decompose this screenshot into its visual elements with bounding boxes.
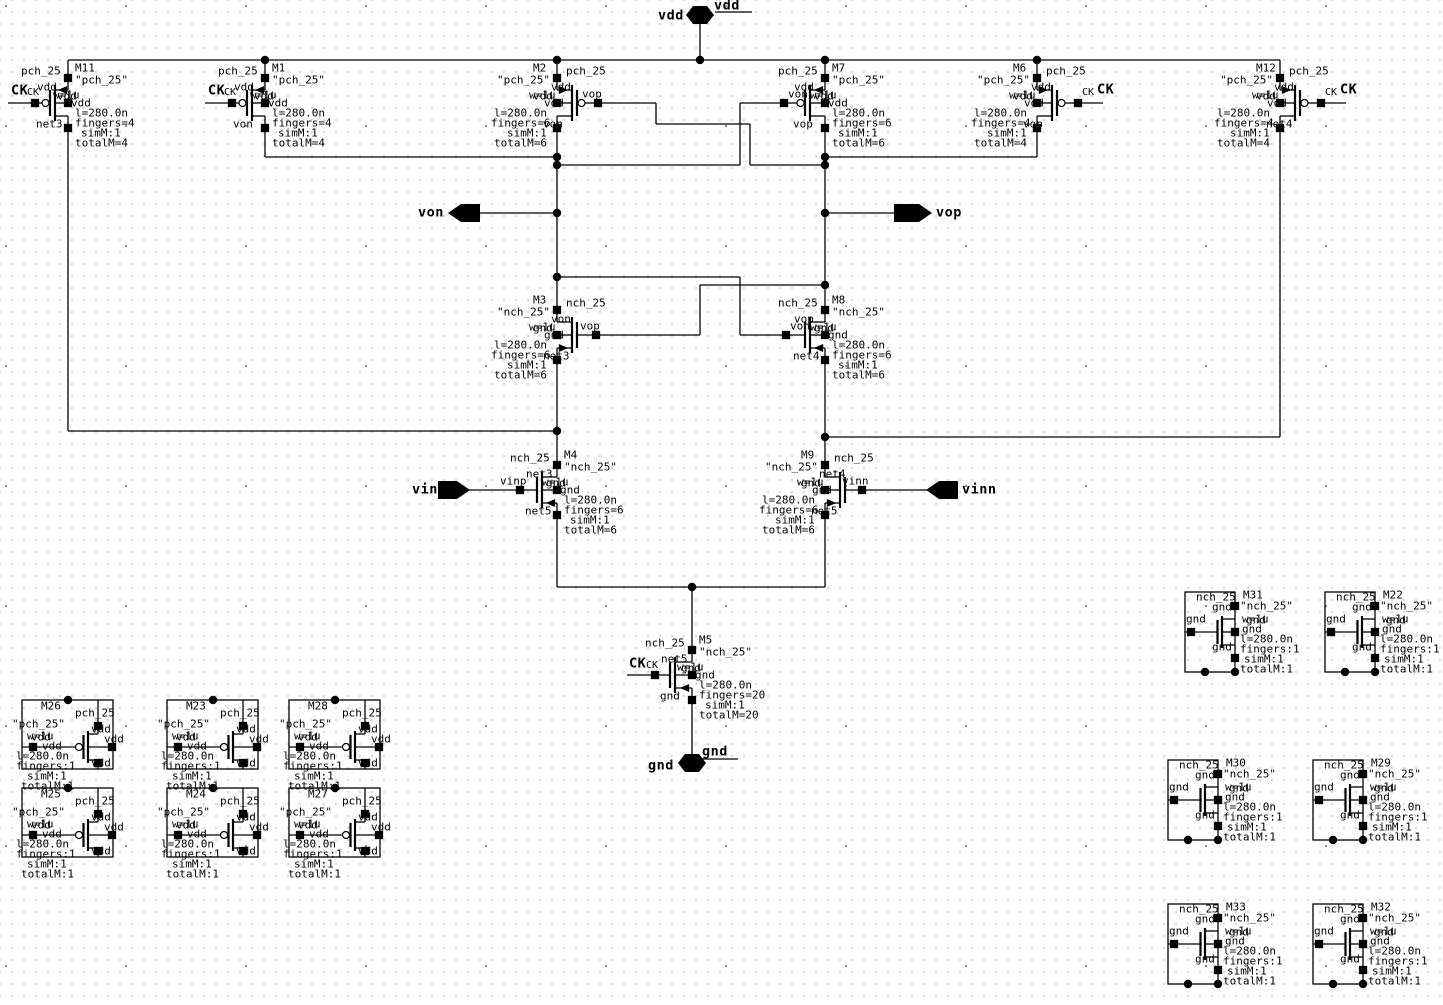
port-vinn[interactable] bbox=[926, 481, 958, 499]
transistor-M9-symbol[interactable] bbox=[822, 462, 866, 519]
transistor-symbols[interactable] bbox=[22, 75, 1379, 985]
transistor-M31-symbol[interactable] bbox=[1185, 592, 1239, 672]
transistor-M4-symbol[interactable] bbox=[517, 462, 561, 519]
transistor-M12-symbol[interactable] bbox=[1277, 75, 1325, 132]
port-gnd[interactable] bbox=[678, 754, 706, 772]
transistor-M22-symbol[interactable] bbox=[1325, 592, 1379, 672]
schematic-drawing[interactable] bbox=[0, 0, 1443, 1005]
port-vinp[interactable] bbox=[438, 481, 470, 499]
transistor-M24-symbol[interactable] bbox=[167, 788, 261, 857]
transistor-M27-symbol[interactable] bbox=[289, 788, 383, 857]
solder-dots bbox=[29, 56, 1379, 988]
port-vop[interactable] bbox=[894, 204, 932, 222]
transistor-M25-symbol[interactable] bbox=[22, 788, 116, 857]
transistor-M29-symbol[interactable] bbox=[1313, 760, 1367, 840]
schematic-wires[interactable] bbox=[8, 12, 1346, 759]
transistor-M11-symbol[interactable] bbox=[32, 75, 72, 132]
schematic-canvas[interactable]: vdd vdd gnd gnd von vop vinp vinn pch_25… bbox=[0, 0, 1443, 1005]
transistor-M23-symbol[interactable] bbox=[167, 700, 261, 769]
transistor-M26-symbol[interactable] bbox=[22, 700, 116, 769]
transistor-M6-symbol[interactable] bbox=[1034, 75, 1082, 132]
transistor-M28-symbol[interactable] bbox=[289, 700, 383, 769]
port-vdd[interactable] bbox=[686, 6, 714, 24]
transistor-M2-symbol[interactable] bbox=[554, 75, 602, 132]
transistor-M7-symbol[interactable] bbox=[781, 75, 829, 132]
transistor-M8-symbol[interactable] bbox=[783, 307, 829, 364]
transistor-M5-symbol[interactable] bbox=[652, 647, 696, 704]
transistor-M33-symbol[interactable] bbox=[1168, 904, 1222, 984]
transistor-M32-symbol[interactable] bbox=[1313, 904, 1367, 984]
port-von[interactable] bbox=[448, 204, 480, 222]
transistor-M1-symbol[interactable] bbox=[229, 75, 269, 132]
transistor-M3-symbol[interactable] bbox=[554, 307, 600, 364]
transistor-M30-symbol[interactable] bbox=[1168, 760, 1222, 840]
